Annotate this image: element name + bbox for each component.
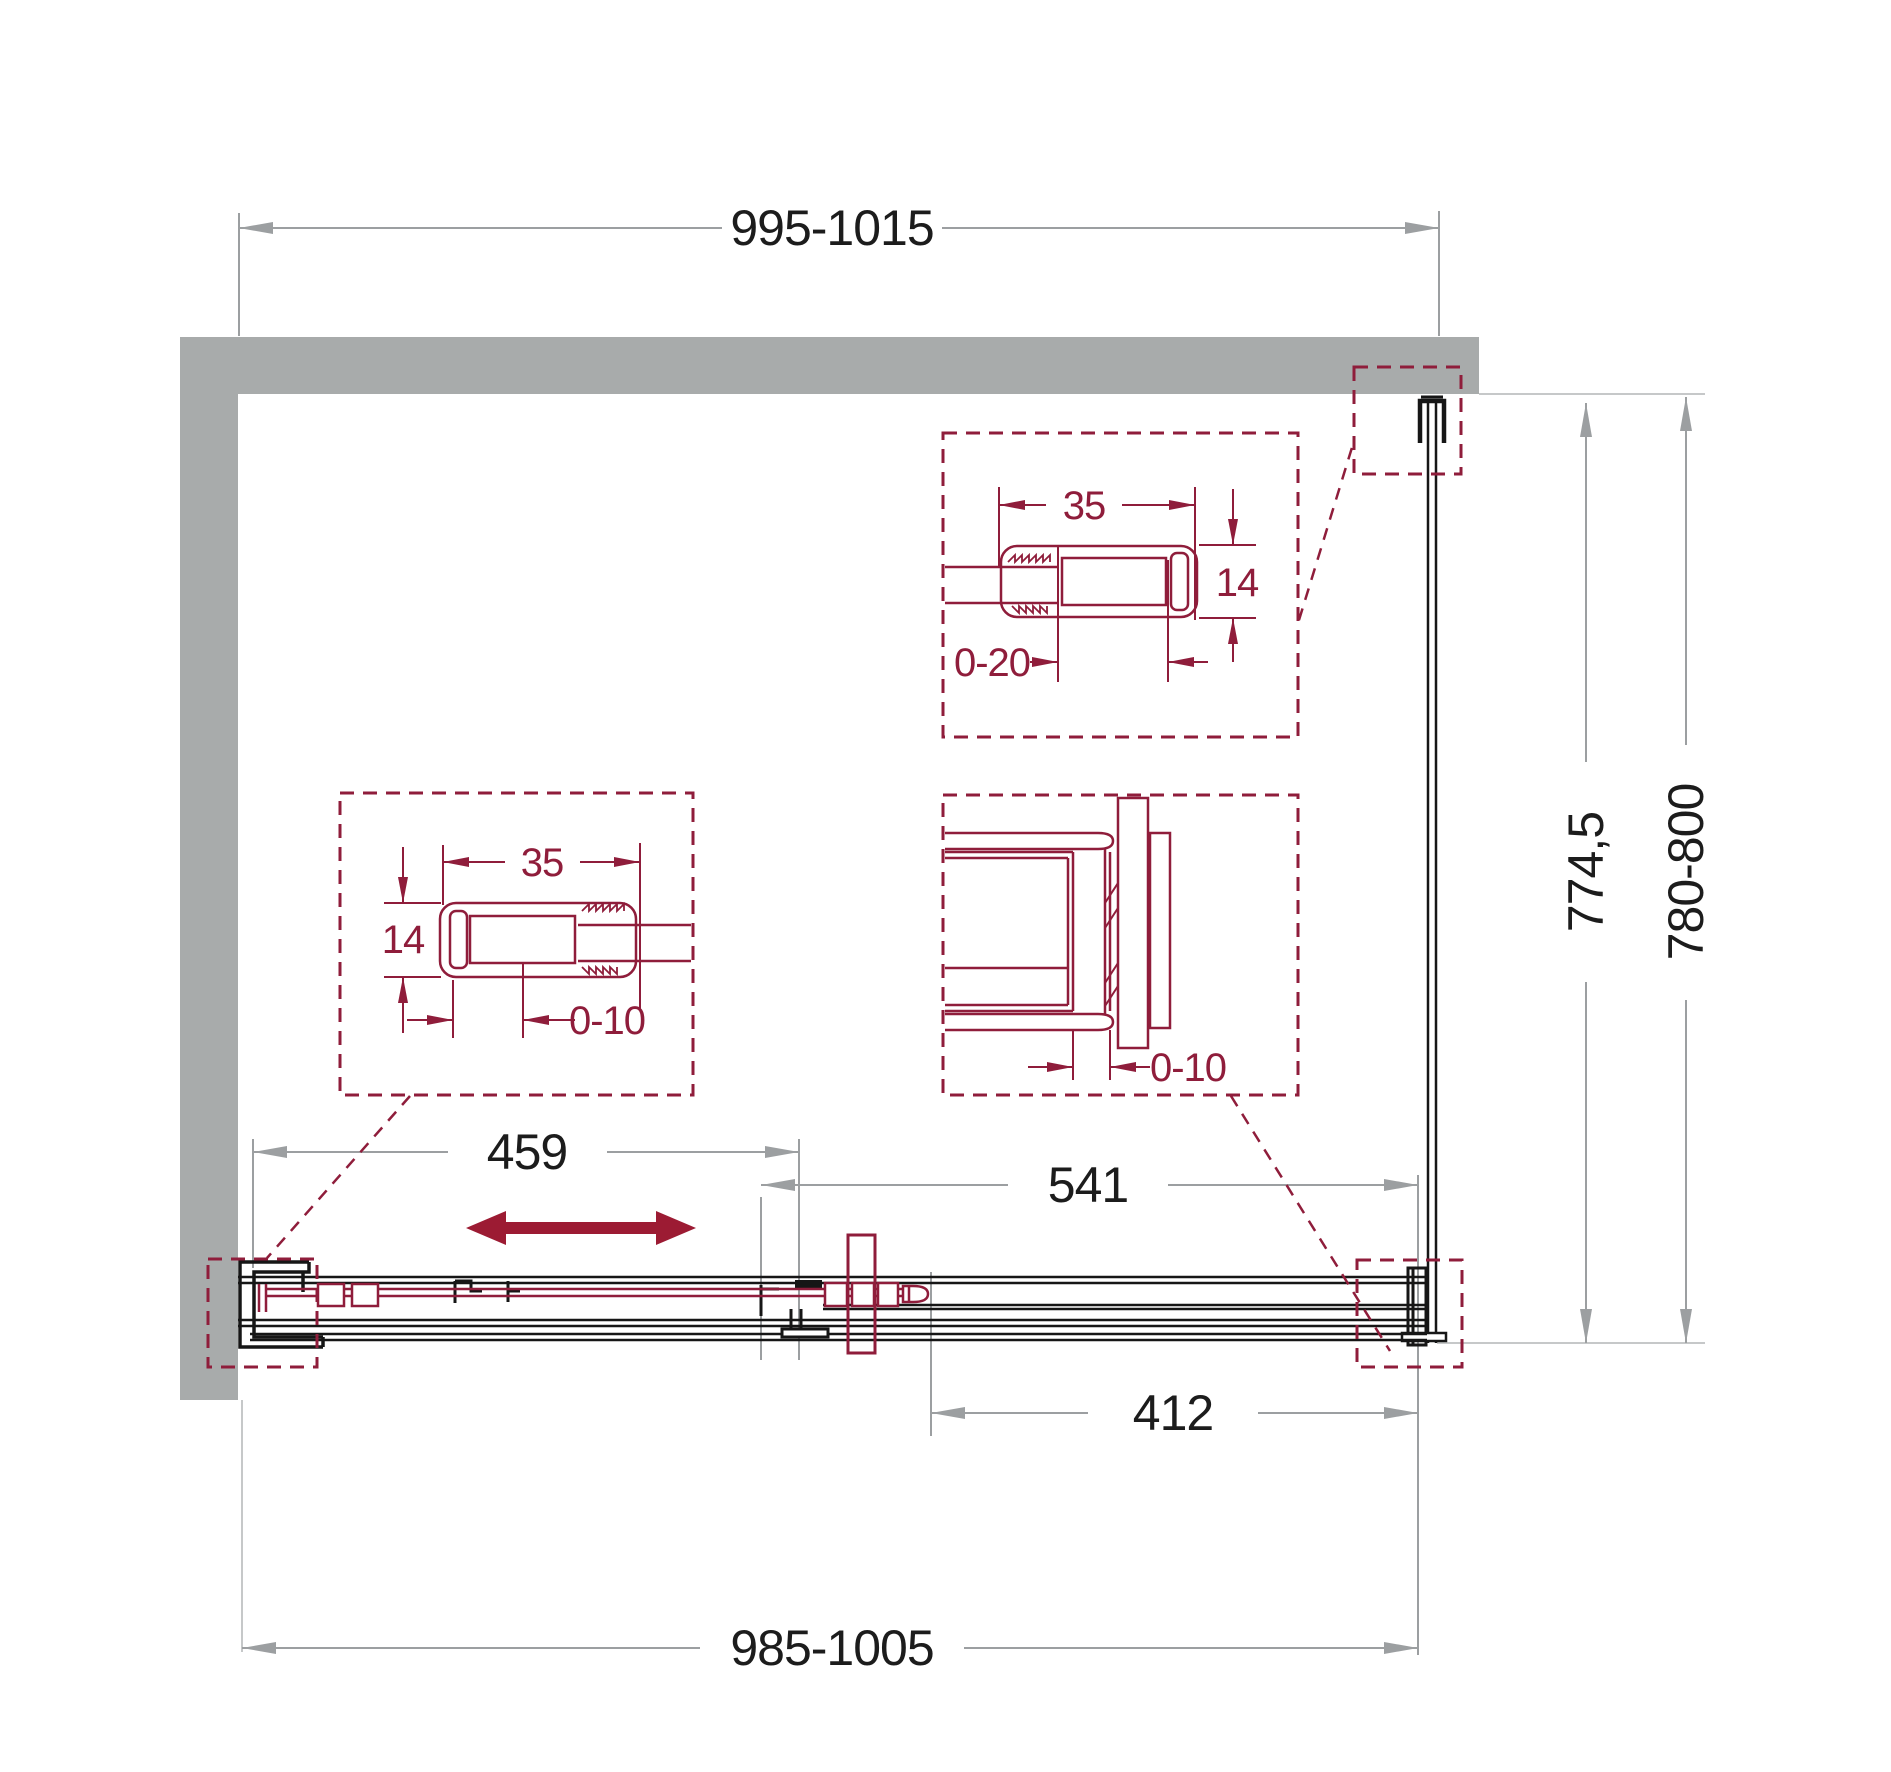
dim-label-door-panel: 412	[1133, 1385, 1213, 1441]
roller-carriage	[825, 1283, 847, 1306]
arrow-right	[1384, 1407, 1418, 1419]
dimension-bottom-width: 985-1005	[242, 1620, 1418, 1676]
dim-label-bottom-width: 985-1005	[730, 1620, 933, 1676]
dimension-door-panel: 412	[931, 1272, 1418, 1441]
arrow-left	[242, 1642, 276, 1654]
roller-carriage	[852, 1283, 874, 1306]
serration-bottom	[582, 967, 617, 974]
dimension-door-opening: 459	[253, 1124, 799, 1360]
dim-label-door-opening: 459	[487, 1124, 567, 1180]
door-bumper	[903, 1286, 928, 1302]
arrow-right	[765, 1146, 799, 1158]
roller-carriage	[352, 1284, 378, 1306]
detail-top-depth-label: 14	[1216, 561, 1259, 605]
door-end-profile	[259, 1284, 266, 1312]
arrow-left	[931, 1407, 965, 1419]
arrow-left	[253, 1146, 287, 1158]
arrow-right	[1384, 1642, 1418, 1654]
leader-left	[267, 1096, 410, 1258]
clamp-teeth	[1105, 883, 1118, 1006]
detail-top-profile: 35 14 0-20	[945, 484, 1259, 685]
detail-left-adjust-label: 0-10	[569, 999, 645, 1043]
wall-left	[180, 337, 238, 1400]
dimension-top-width: 995-1015	[239, 200, 1439, 336]
arrow-left	[239, 222, 273, 234]
serration-top	[582, 904, 624, 911]
track-fitting-left	[455, 1281, 482, 1303]
walls	[180, 337, 1479, 1400]
dimension-inner-depth: 774,5	[1558, 403, 1614, 1343]
roller-carriage	[318, 1284, 344, 1306]
arrow-right	[1384, 1179, 1418, 1191]
wall-top	[180, 337, 1479, 394]
callout-boxes	[208, 367, 1462, 1367]
cover-strip	[1150, 833, 1170, 1028]
track-assembly	[238, 1235, 1427, 1353]
detail-left-width-label: 35	[521, 841, 564, 885]
arrow-down	[1680, 1309, 1692, 1343]
detail-left-depth-label: 14	[382, 918, 425, 962]
wall-clamp-profile	[1420, 401, 1444, 443]
dimension-depth-range: 780-800	[1658, 397, 1714, 1343]
serration-top	[1008, 555, 1050, 562]
arrow-left	[761, 1179, 795, 1191]
roller-carriage	[878, 1283, 898, 1306]
center-post-cap	[795, 1280, 822, 1288]
shower-enclosure-plan-svg: 995-1015 459 541 412	[0, 0, 1891, 1772]
center-post-base	[782, 1329, 828, 1337]
dim-label-inner-depth: 774,5	[1558, 812, 1614, 932]
slide-direction-arrow	[466, 1211, 696, 1245]
dim-label-fixed-section: 541	[1048, 1157, 1128, 1213]
arrow-right	[1405, 222, 1439, 234]
arrow-down	[1580, 1309, 1592, 1343]
sliding-door-panel	[259, 1283, 928, 1312]
side-glass-panel	[1402, 397, 1446, 1345]
detail-top-width-label: 35	[1063, 484, 1106, 528]
detail-left-profile: 35 14 0-10	[382, 841, 691, 1043]
leader-center	[1231, 1096, 1390, 1351]
serration-bottom	[1012, 606, 1047, 613]
dimension-fixed-section: 541	[761, 1157, 1418, 1655]
leader-top	[1299, 441, 1354, 620]
technical-drawing-page: 995-1015 459 541 412	[0, 0, 1891, 1772]
fixed-glass-section	[1118, 798, 1148, 1048]
detail-top-adjust-label: 0-20	[954, 641, 1030, 685]
reference-hairlines	[242, 394, 1705, 1652]
arrow-up	[1580, 403, 1592, 437]
detail-center-adjust-label: 0-10	[1150, 1046, 1226, 1090]
dim-label-top-width: 995-1015	[730, 200, 933, 256]
arrow-up	[1680, 397, 1692, 431]
detail-center-profile: 0-10	[945, 798, 1226, 1090]
dim-label-depth-range: 780-800	[1658, 784, 1714, 961]
